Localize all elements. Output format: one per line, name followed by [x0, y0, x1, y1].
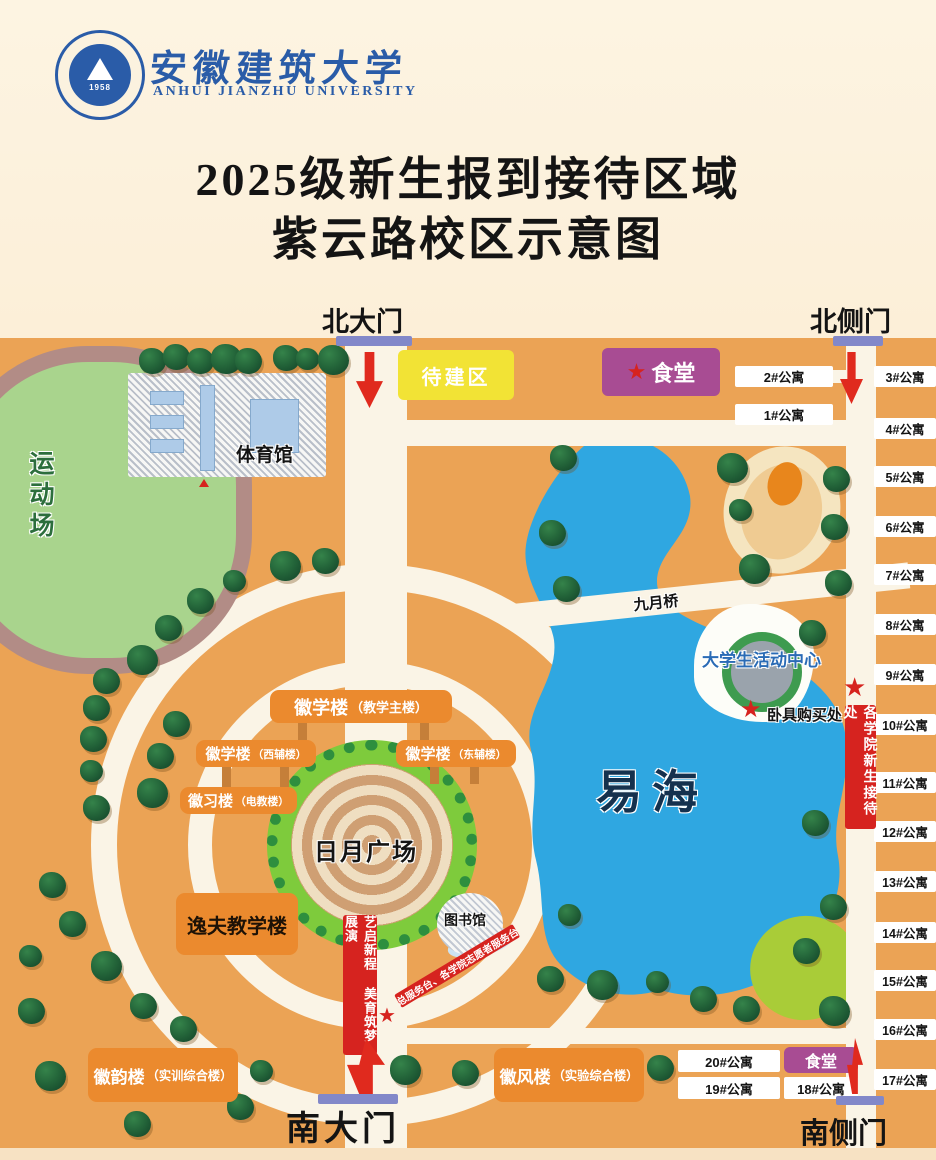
building-name: 徽学楼 [406, 743, 451, 764]
apartment-box: 11#公寓 [874, 772, 936, 793]
tree-icon [80, 760, 103, 782]
apartment-box: 9#公寓 [874, 664, 936, 685]
canteen-south-box: 食堂 [784, 1047, 858, 1073]
building-icon [87, 58, 113, 80]
apartment-box: 14#公寓 [874, 922, 936, 943]
tree-icon [147, 743, 174, 769]
lake-label: 易海 [596, 756, 708, 822]
tree-icon [553, 576, 580, 602]
apartment-box: 8#公寓 [874, 614, 936, 635]
apartment-box: 15#公寓 [874, 970, 936, 991]
poster-title-line1: 2025级新生报到接待区域 [0, 143, 936, 209]
university-name-en: ANHUI JIANZHU UNIVERSITY [153, 84, 418, 100]
seal-year: 1958 [89, 83, 111, 92]
tree-icon [235, 348, 262, 374]
tree-icon [825, 570, 852, 596]
reception-banner: 各学院新生接待处 [845, 705, 876, 829]
bridge-label: 九月桥 [632, 589, 679, 615]
gym-wing [150, 391, 184, 405]
apartment-box: 6#公寓 [874, 516, 936, 537]
building-sub: （东辅楼） [453, 746, 507, 762]
tree-icon [155, 615, 182, 641]
gym-marker-icon [199, 479, 209, 487]
tree-icon [646, 971, 669, 993]
gym-label: 体育馆 [236, 440, 293, 467]
star-icon: ★ [378, 1006, 396, 1026]
gymnasium [128, 373, 326, 477]
tree-icon [452, 1060, 479, 1086]
seal-emblem: 1958 [69, 44, 131, 106]
activity-center-building [722, 632, 802, 712]
tree-icon [390, 1055, 421, 1085]
tree-icon [820, 894, 847, 920]
north-gate-bar [336, 336, 412, 346]
tree-icon [91, 951, 122, 981]
south-side-gate-label: 南侧门 [800, 1110, 887, 1152]
tree-icon [690, 986, 717, 1012]
seal-ring: 1958 [55, 30, 145, 120]
canteen-north-box: ★ 食堂 [602, 348, 720, 396]
building-name: 徽风楼 [500, 1063, 551, 1088]
tree-icon [250, 1060, 273, 1082]
building-sub: （实验综合楼） [553, 1066, 639, 1084]
south-gate-label: 南大门 [286, 1101, 400, 1150]
tree-icon [83, 795, 110, 821]
tree-icon [270, 551, 301, 581]
tree-icon [83, 695, 110, 721]
tree-icon [187, 588, 214, 614]
tree-icon [139, 348, 166, 374]
connector [430, 766, 439, 784]
building-name: 徽韵楼 [94, 1063, 145, 1088]
tree-icon [130, 993, 157, 1019]
tree-icon [729, 499, 752, 521]
apartment-box: 7#公寓 [874, 564, 936, 585]
tree-icon [821, 514, 848, 540]
building-yifu: 逸夫教学楼 [176, 893, 298, 955]
star-icon: ★ [627, 361, 647, 383]
tree-icon [137, 778, 168, 808]
tbd-area-box: 待建区 [398, 350, 514, 400]
tree-icon [35, 1061, 66, 1091]
tree-icon [647, 1055, 674, 1081]
apartment-19-box: 19#公寓 [678, 1077, 780, 1099]
tree-icon [187, 348, 214, 374]
sports-field-label: 运动场 [22, 450, 58, 543]
tree-icon [587, 970, 618, 1000]
tree-icon [19, 945, 42, 967]
apartment-2-box: 2#公寓 [735, 366, 833, 387]
building-sub: （教学主楼） [350, 697, 428, 716]
campus-map: 九月桥 易海 运动场 体育馆 日月广场 大学生活动中心 图书馆 [0, 338, 936, 1148]
tree-icon [124, 1111, 151, 1137]
connector [280, 766, 289, 787]
apartment-1-box: 1#公寓 [735, 404, 833, 425]
activity-center-label: 大学生活动中心 [702, 646, 821, 671]
building-huixue-main: 徽学楼 （教学主楼） [270, 690, 452, 723]
tree-icon [558, 904, 581, 926]
tree-icon [539, 520, 566, 546]
apartment-box: 16#公寓 [874, 1019, 936, 1040]
university-seal: 1958 [55, 30, 145, 120]
plaza-label: 日月广场 [314, 832, 418, 867]
south-side-gate-bar [836, 1096, 884, 1105]
tree-icon [163, 711, 190, 737]
tree-icon [312, 548, 339, 574]
apartment-20-box: 20#公寓 [678, 1050, 780, 1072]
tree-icon [39, 872, 66, 898]
tree-icon [223, 570, 246, 592]
tree-icon [80, 726, 107, 752]
tree-icon [170, 1016, 197, 1042]
building-huiyun: 徽韵楼 （实训综合楼） [88, 1048, 238, 1102]
star-icon: ★ [843, 674, 866, 700]
tree-icon [93, 668, 120, 694]
connector [222, 766, 231, 787]
building-sub: （电教楼） [235, 793, 289, 809]
building-huifeng: 徽风楼 （实验综合楼） [494, 1048, 644, 1102]
poster-title-line2: 紫云路校区示意图 [0, 203, 936, 269]
south-service-road [407, 1028, 857, 1044]
apartment-box: 10#公寓 [874, 714, 936, 735]
north-side-gate-label: 北侧门 [810, 300, 891, 339]
tree-icon [799, 620, 826, 646]
connector [420, 722, 429, 742]
canteen-north-label: 食堂 [651, 356, 695, 388]
tree-icon [733, 996, 760, 1022]
building-huixue-west: 徽学楼 （西辅楼） [196, 740, 316, 767]
building-name: 徽学楼 [206, 743, 251, 764]
apartment-box: 5#公寓 [874, 466, 936, 487]
building-huixi: 徽习楼 （电教楼） [180, 787, 297, 814]
building-huixue-east: 徽学楼 （东辅楼） [396, 740, 516, 767]
tree-icon [717, 453, 748, 483]
north-side-gate-bar [833, 336, 883, 346]
connector [298, 722, 307, 742]
bedding-point-label: 卧具购买处 [767, 704, 842, 725]
tree-icon [819, 996, 850, 1026]
tree-icon [739, 554, 770, 584]
tree-icon [537, 966, 564, 992]
building-name: 徽学楼 [294, 694, 348, 720]
tree-icon [793, 938, 820, 964]
stage-banner: 艺启新程 美育筑梦展演 [343, 915, 377, 1055]
tree-icon [802, 810, 829, 836]
tree-icon [296, 348, 319, 370]
building-name: 徽习楼 [188, 790, 233, 811]
tree-icon [127, 645, 158, 675]
apartment-box: 4#公寓 [874, 418, 936, 439]
apartment-box: 12#公寓 [874, 821, 936, 842]
tree-icon [550, 445, 577, 471]
tree-icon [318, 345, 349, 375]
gym-hall [200, 385, 215, 471]
apartment-box: 13#公寓 [874, 871, 936, 892]
gym-wing [150, 415, 184, 429]
tree-icon [163, 344, 190, 370]
apartment-box: 17#公寓 [874, 1069, 936, 1090]
connector [470, 766, 479, 784]
building-sub: （西辅楼） [253, 746, 307, 762]
star-icon: ★ [740, 698, 762, 722]
campus-map-poster: 1958 安徽建筑大学 ANHUI JIANZHU UNIVERSITY 202… [0, 0, 936, 1160]
north-gate-label: 北大门 [322, 300, 403, 339]
library-label: 图书馆 [444, 910, 486, 930]
building-sub: （实训综合楼） [147, 1066, 233, 1084]
tree-icon [823, 466, 850, 492]
apartment-box: 3#公寓 [874, 366, 936, 387]
tree-icon [59, 911, 86, 937]
tree-icon [18, 998, 45, 1024]
gym-wing [150, 439, 184, 453]
